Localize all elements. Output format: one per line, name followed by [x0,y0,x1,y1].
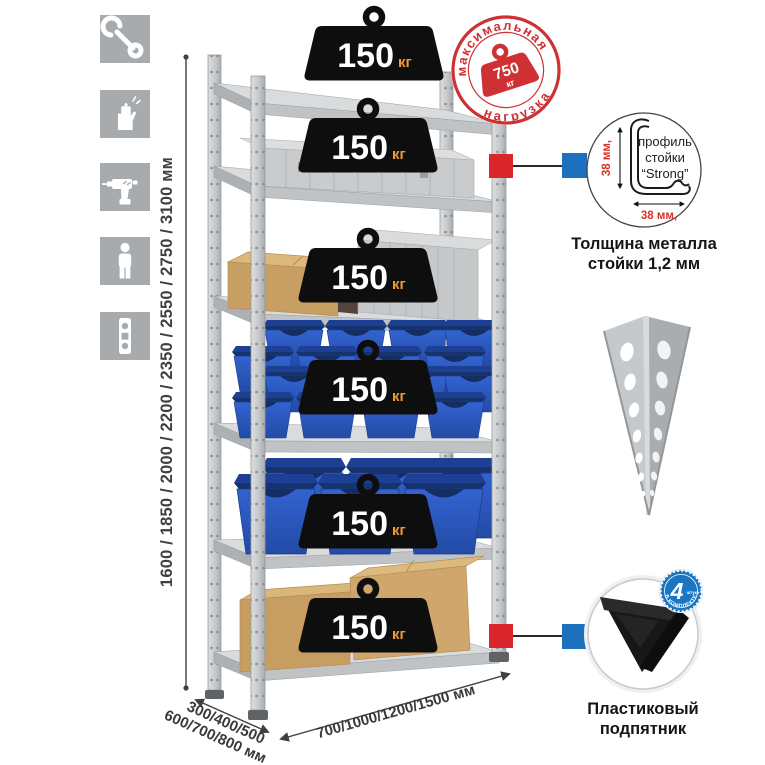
shelving-infographic: 150 кг 150 кг 150 кг 150 кг 150 кг 150 к… [0,0,765,765]
weight-unit: кг [392,626,406,643]
callout-red-square-top [489,154,513,178]
weight-value: 150 [331,609,388,647]
foot-caption-line1: Пластиковый [587,700,698,718]
profile-label-line2: стойки [645,150,685,165]
height-dimension-label: 1600 / 1850 / 2000 / 2200 / 2350 / 2550 … [158,157,176,587]
width-dimension: 700/1000/1200/1500 мм [281,674,509,742]
profile-label-line1: профиль [638,134,692,149]
weight-value: 150 [337,37,394,75]
weight-unit: кг [398,54,412,71]
callout-top [489,153,589,178]
profile-label-line3: “Strong” [642,166,689,181]
profile-dim-vertical: 38 мм, [601,140,613,176]
weight-unit: кг [392,522,406,539]
diagram-scene: 150 кг 150 кг 150 кг 150 кг 150 кг 150 к… [0,0,765,765]
weight-value: 150 [331,505,388,543]
quantity-badge: 4 штуки в комплекте [660,570,703,613]
foot-caption-line2: подпятник [600,720,687,738]
width-dimension-label: 700/1000/1200/1500 мм [315,681,477,742]
weight-value: 150 [331,259,388,297]
height-dimension: 1600 / 1850 / 2000 / 2200 / 2350 / 2550 … [158,54,189,690]
callout-blue-square-top [562,153,587,178]
callout-blue-square-bottom [562,624,587,649]
weight-unit: кг [392,388,406,405]
shelf-weight-1: 150 кг [305,9,444,81]
profile-detail-circle: 38 мм, 38 мм, профиль стойки “Strong” То… [571,113,717,273]
corner-post-image [604,316,690,515]
profile-dim-horizontal: 38 мм, [641,210,677,222]
callout-red-square-bottom [489,624,513,648]
weight-value: 150 [331,129,388,167]
weight-value: 150 [331,371,388,409]
weight-unit: кг [392,146,406,163]
plastic-foot-circle: 4 штуки в комплекте Пластиковый подпятни… [586,570,703,739]
profile-caption-line2: стойки 1,2 мм [588,255,700,273]
profile-caption-line1: Толщина металла [571,235,717,253]
weight-unit: кг [392,276,406,293]
callout-bottom [489,624,590,649]
